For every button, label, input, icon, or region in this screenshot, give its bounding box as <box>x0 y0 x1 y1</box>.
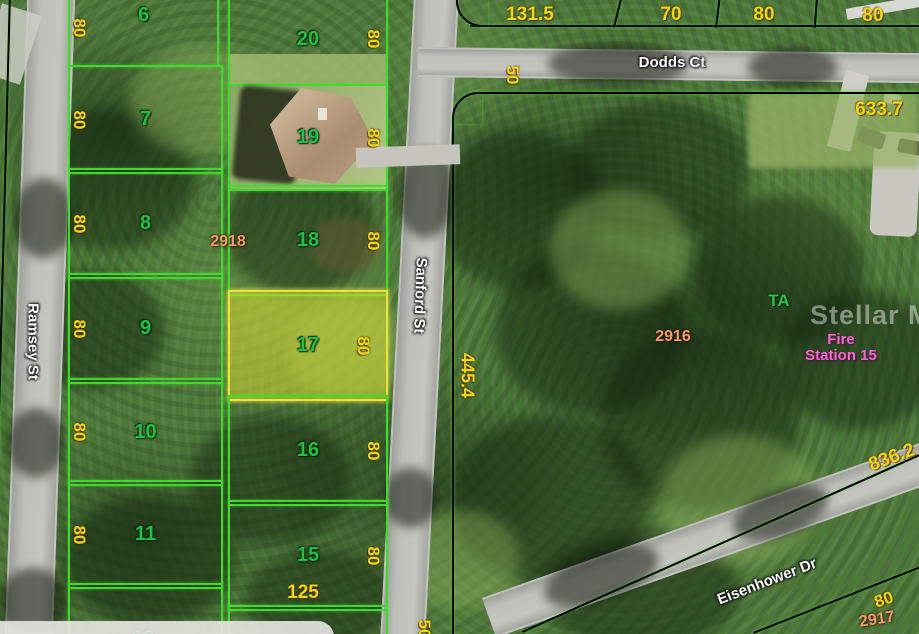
dim-70: 70 <box>653 4 689 26</box>
lot-6-width-label: 80 <box>69 13 89 43</box>
lot-19: 80 19 <box>228 84 388 191</box>
dim-445-4: 445.4 <box>457 346 478 406</box>
lot-7: 80 7 <box>68 65 223 174</box>
lot-divider <box>715 0 721 28</box>
tree-shadow <box>382 466 439 529</box>
lot-16: 80 16 <box>228 395 388 506</box>
lot-18-width-label: 80 <box>363 226 383 256</box>
house-chimney <box>318 108 327 120</box>
lot-19-width-label: 80 <box>363 123 383 153</box>
lot-20-number: 20 <box>297 28 319 51</box>
fire-station-label: Fire Station 15 <box>795 332 887 364</box>
stellar-mls-watermark: Stellar MLS <box>810 300 919 331</box>
lot-15-width-label: 80 <box>363 541 383 571</box>
ta-label: TA <box>763 291 795 311</box>
lot-7-number: 7 <box>140 108 151 131</box>
sanford-st-label: Sanford St <box>410 250 430 341</box>
fire-station-line2: Station 15 <box>795 348 887 364</box>
parcel-2916-label: 2916 <box>650 328 696 346</box>
tree-shadow <box>748 47 838 88</box>
dodds-ct-label: Dodds Ct <box>622 54 722 71</box>
east-lot-column: 80 20 80 19 80 18 80 17 80 16 80 15 <box>228 0 388 634</box>
west-lot-column: 80 6 80 7 80 8 80 9 80 10 80 11 12 <box>68 0 223 634</box>
lot-10-number: 10 <box>134 421 156 444</box>
lot-8-number: 8 <box>140 212 151 235</box>
dim-125: 125 <box>280 582 326 604</box>
parcel-corner-north-lots <box>456 0 488 27</box>
parcel-2918-label: 2918 <box>205 233 251 251</box>
parcel-2916-north-line <box>476 92 919 94</box>
parcel-2917-label: 2917 <box>848 607 906 634</box>
lawn-patch <box>230 54 386 88</box>
lot-20-width-label: 80 <box>363 24 383 54</box>
lot-17-width-label: 80 <box>353 331 373 361</box>
lot-17-number: 17 <box>297 334 319 357</box>
parcel-2916-corner <box>452 92 482 124</box>
fire-station-line1: Fire <box>795 332 887 348</box>
lot-divider <box>613 0 623 28</box>
dim-80-north-b: 80 <box>856 5 890 27</box>
lot-8-width-label: 80 <box>69 209 89 239</box>
ramsey-st-label: Ramsey St <box>25 297 42 387</box>
lot-20: 80 20 <box>228 0 388 90</box>
map-canvas[interactable]: 80 6 80 7 80 8 80 9 80 10 80 11 12 <box>0 0 919 634</box>
dim-131-5: 131.5 <box>500 4 560 26</box>
lot-17-highlighted[interactable]: 80 17 <box>228 290 388 401</box>
dim-633-7: 633.7 <box>843 99 915 121</box>
lot-6-number: 6 <box>138 4 149 27</box>
parcel-2916-west-line <box>452 118 454 634</box>
lot-18: 80 18 <box>228 185 388 296</box>
lot-10-width-label: 80 <box>69 417 89 447</box>
dim-50-top: 50 <box>502 55 522 95</box>
lot-divider <box>814 0 818 28</box>
lot-8: 80 8 <box>68 168 223 279</box>
lot-11-width-label: 80 <box>69 520 89 550</box>
lot-18-number: 18 <box>297 229 319 252</box>
lot-16-width-label: 80 <box>363 436 383 466</box>
lot-11-number: 11 <box>135 523 156 546</box>
lot-19-number: 19 <box>297 126 319 149</box>
lot-16-number: 16 <box>297 439 319 462</box>
lot-15-number: 15 <box>297 544 319 567</box>
lot-7-width-label: 80 <box>69 105 89 135</box>
lot-9-width-label: 80 <box>69 314 89 344</box>
tree-shadow <box>12 177 75 259</box>
lot-9: 80 9 <box>68 273 223 384</box>
lot-6: 80 6 <box>68 0 219 67</box>
lot-11: 80 11 <box>68 480 223 589</box>
tree-shadow <box>6 407 64 479</box>
lot-10: 80 10 <box>68 378 223 486</box>
dim-50-bottom: 50 <box>414 609 434 634</box>
attribution-box <box>0 621 334 634</box>
dim-80-north-a: 80 <box>747 4 781 26</box>
tree-canopy-blob <box>550 190 690 310</box>
lot-9-number: 9 <box>140 317 151 340</box>
